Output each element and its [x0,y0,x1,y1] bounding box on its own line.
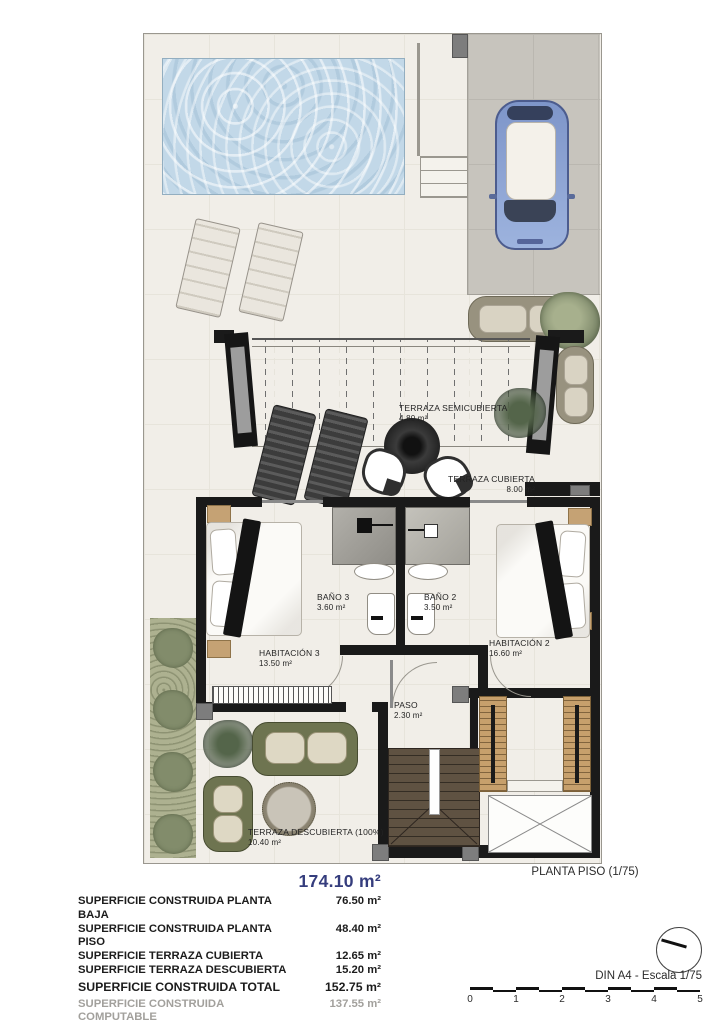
room-label-terraza-semicubierta: TERRAZA SEMICUBIERTA4.80 m² [399,403,508,424]
summary-total-row: SUPERFICIE CONSTRUIDA TOTAL152.75 m² [78,980,381,995]
car-rear-window [507,106,553,120]
room-label-terraza-descubierta: TERRAZA DESCUBIERTA (100%)10.40 m² [248,827,384,848]
pillar [452,686,469,703]
patio-wall [417,43,420,156]
nightstand [207,505,231,523]
wall [196,497,206,712]
compass-needle [661,938,687,948]
bush [153,690,193,730]
shower-head [424,524,438,538]
olive-sofa [203,776,253,852]
scale-bar [470,987,700,992]
wardrobe-flight [479,696,507,792]
swimming-pool [162,58,405,195]
car-mirror [489,194,497,199]
scale-tick: 1 [506,994,526,1005]
scale-tick: 5 [690,994,710,1005]
entry-stairs [420,156,468,198]
room-label-bano-2: BAÑO 23.50 m² [424,592,456,613]
void-crossed-box [488,795,592,853]
scale-tick: 2 [552,994,572,1005]
wall [372,702,388,712]
summary-row: SUPERFICIE CONSTRUIDA PLANTA PISO48.40 m… [78,923,381,951]
summary-row: SUPERFICIE TERRAZA DESCUBIERTA15.20 m² [78,964,381,978]
pergola-beam [252,346,530,347]
car-roof [506,122,556,200]
plan-caption: PLANTA PISO (1/75) [500,866,670,878]
bush [153,752,193,792]
garden-sofa [556,346,594,424]
wardrobe [212,686,332,704]
summary-row: SUPERFICIE CONSTRUIDA PLANTA BAJA76.50 m… [78,895,381,923]
shower-head [357,518,372,533]
wall [340,645,480,655]
pillar [452,34,468,58]
car-windshield [504,200,556,222]
sliding-door [262,500,323,503]
wall [396,505,405,655]
summary-computable-row: SUPERFICIE CONSTRUIDA COMPUTABLE137.55 m… [78,998,381,1024]
room-label-terraza-cubierta: TERRAZA CUBIERTA8.00 m² [440,474,535,495]
surface-summary: 174.10 m² SUPERFICIE CONSTRUIDA PLANTA B… [78,871,381,1024]
north-compass-icon [656,927,702,973]
shower [405,507,470,565]
toilet [367,593,395,635]
room-label-bano-3: BAÑO 33.60 m² [317,592,349,613]
staircase [388,748,480,847]
landing [507,780,563,792]
summary-row: SUPERFICIE TERRAZA CUBIERTA12.65 m² [78,950,381,964]
sink [408,563,448,580]
scale-label: DIN A4 - Escala 1/75 [558,970,702,982]
nightstand [207,640,231,658]
olive-sofa [252,722,358,776]
room-label-paso: PASO2.30 m² [394,700,423,721]
total-area-title: 174.10 m² [78,871,381,892]
scale-tick: 3 [598,994,618,1005]
car-mirror [567,194,575,199]
wardrobe-flight [563,696,591,792]
sink [354,563,394,580]
sliding-door [470,500,527,503]
floor-plan-page: TERRAZA SEMICUBIERTA4.80 m² TERRAZA CUBI… [0,0,723,1024]
door-leaf [390,660,393,708]
bush [153,814,193,854]
bed [496,524,590,638]
shower [332,507,396,565]
bed [206,522,302,636]
car-grille [517,239,543,244]
pillar [196,703,213,720]
car [495,100,569,250]
pillar [570,485,590,496]
scale-tick: 0 [460,994,480,1005]
bush [153,628,193,668]
scale-tick: 4 [644,994,664,1005]
